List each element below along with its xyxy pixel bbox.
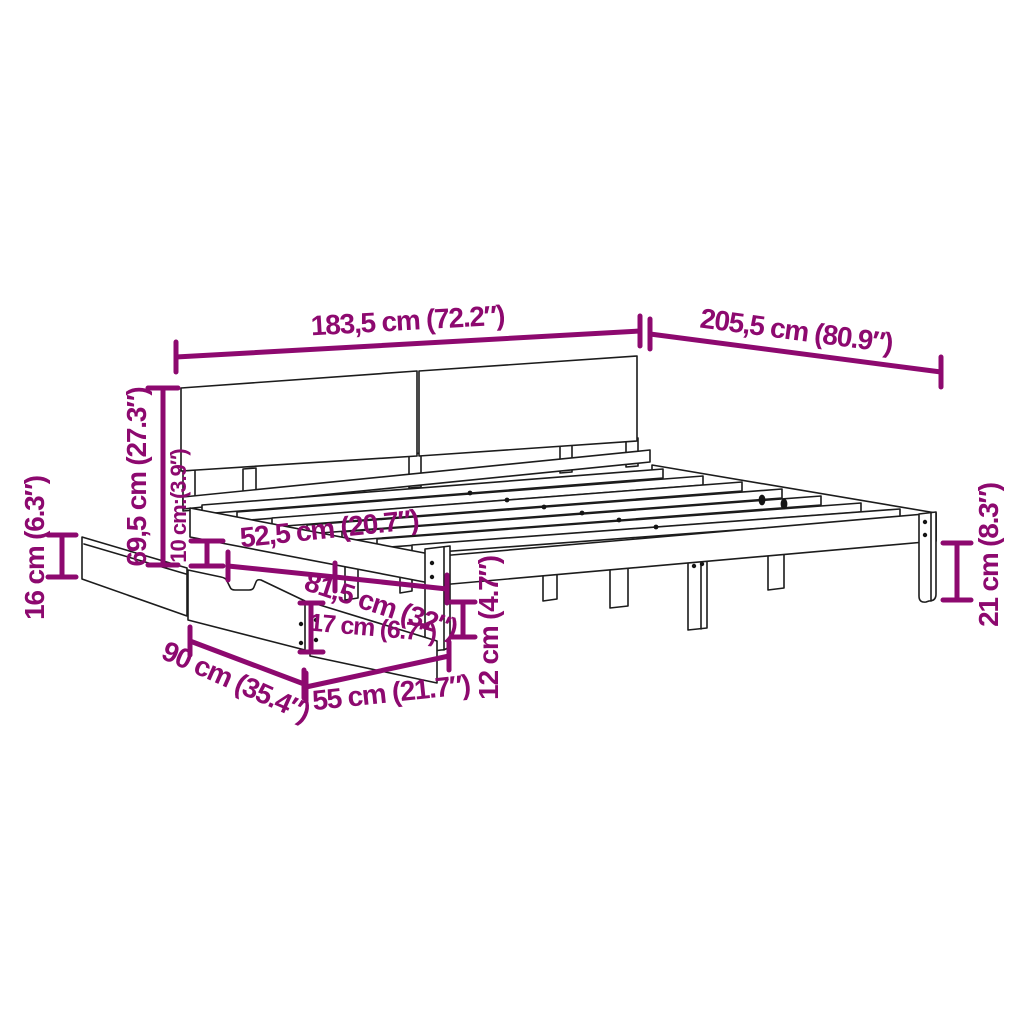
bed-frame-diagram-svg: 183,5 cm (72.2″) 205,5 cm (80.9″) 69,5 c… xyxy=(0,0,1024,1024)
bed-frame-drawing xyxy=(82,356,936,683)
headboard-panel-left xyxy=(181,371,417,471)
dimension-diagram: 183,5 cm (72.2″) 205,5 cm (80.9″) 69,5 c… xyxy=(0,0,1024,1024)
dim-bed-width-label: 183,5 cm (72.2″) xyxy=(310,300,505,342)
dim-bed-length-label: 205,5 cm (80.9″) xyxy=(698,303,894,359)
dim-headboard-height-label: 69,5 cm (27.3″) xyxy=(121,387,152,566)
corner-leg-right xyxy=(919,512,936,602)
dim-bed-length: 205,5 cm (80.9″) xyxy=(650,303,941,387)
dim-drawer-side-height: 16 cm (6.3″) xyxy=(19,476,76,620)
dim-leg-height-label: 21 cm (8.3″) xyxy=(973,483,1004,627)
dim-underbed-clearance-label: 12 cm (4.7″) xyxy=(473,556,504,700)
dim-drawer-side-height-label: 16 cm (6.3″) xyxy=(19,476,50,620)
headboard-panel-right xyxy=(419,356,637,456)
drawer-front-panel xyxy=(188,570,305,650)
dim-drawer-width-label: 55 cm (21.7″) xyxy=(311,669,472,716)
dim-leg-height: 21 cm (8.3″) xyxy=(943,483,1004,627)
dim-side-rail-height-label: 10 cm:(3.9″) xyxy=(166,449,191,563)
